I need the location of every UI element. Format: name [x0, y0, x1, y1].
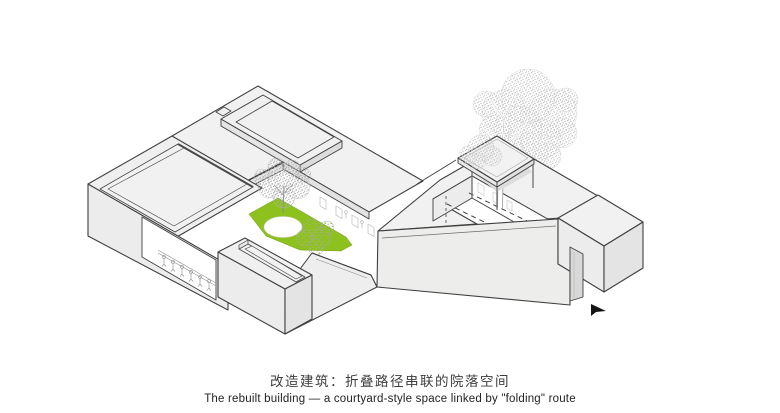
circular-paving — [264, 217, 302, 238]
axonometric-drawing — [0, 0, 780, 413]
front-block — [218, 238, 312, 334]
end-block — [558, 195, 643, 301]
caption: 改造建筑：折叠路径串联的院落空间 The rebuilt building — … — [0, 370, 780, 405]
screenshot-root: 改造建筑：折叠路径串联的院落空间 The rebuilt building — … — [0, 0, 780, 413]
door-recess — [570, 247, 583, 301]
caption-chinese: 改造建筑：折叠路径串联的院落空间 — [0, 370, 780, 390]
cursor-arrow-icon — [591, 304, 606, 316]
caption-english: The rebuilt building — a courtyard-style… — [0, 393, 780, 405]
